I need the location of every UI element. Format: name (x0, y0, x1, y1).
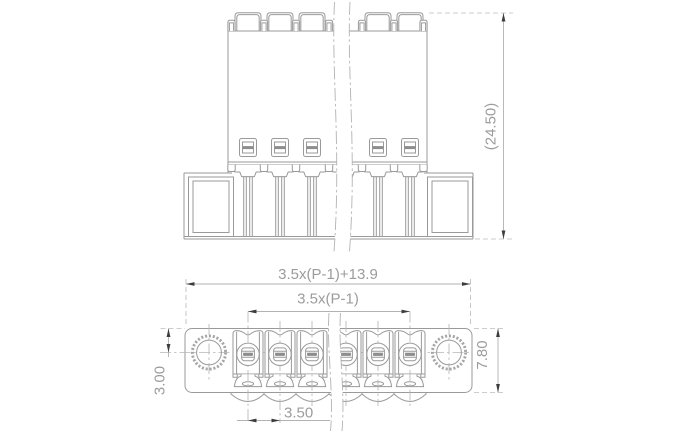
break-lines-front (334, 2, 353, 252)
break-lines-bottom (328, 313, 342, 431)
pitch-label: 3.50 (284, 405, 313, 422)
mount-offset-label: 3.00 (152, 366, 169, 395)
overall-height-label: (24.50) (483, 103, 500, 151)
dim-mount-offset: 3.00 (152, 329, 186, 396)
bottom-view (160, 312, 472, 424)
pin-span-label: 3.5x(P-1) (297, 291, 359, 308)
dim-overall-height: (24.50) (429, 13, 513, 239)
terminal-block-dimensional-drawing: (24.50) 3.5x(P-1)+13.9 (0, 0, 680, 440)
front-view (184, 13, 473, 239)
dim-pitch: 3.50 (237, 405, 330, 423)
body-depth-label: 7.80 (474, 340, 491, 369)
ear-window-left (189, 177, 234, 237)
dim-pin-span: 3.5x(P-1) (248, 291, 410, 314)
dim-body-depth: 7.80 (474, 329, 506, 393)
ear-window-right (428, 177, 473, 237)
total-width-label: 3.5x(P-1)+13.9 (278, 266, 378, 283)
technical-drawing-canvas: (24.50) 3.5x(P-1)+13.9 (0, 0, 680, 440)
